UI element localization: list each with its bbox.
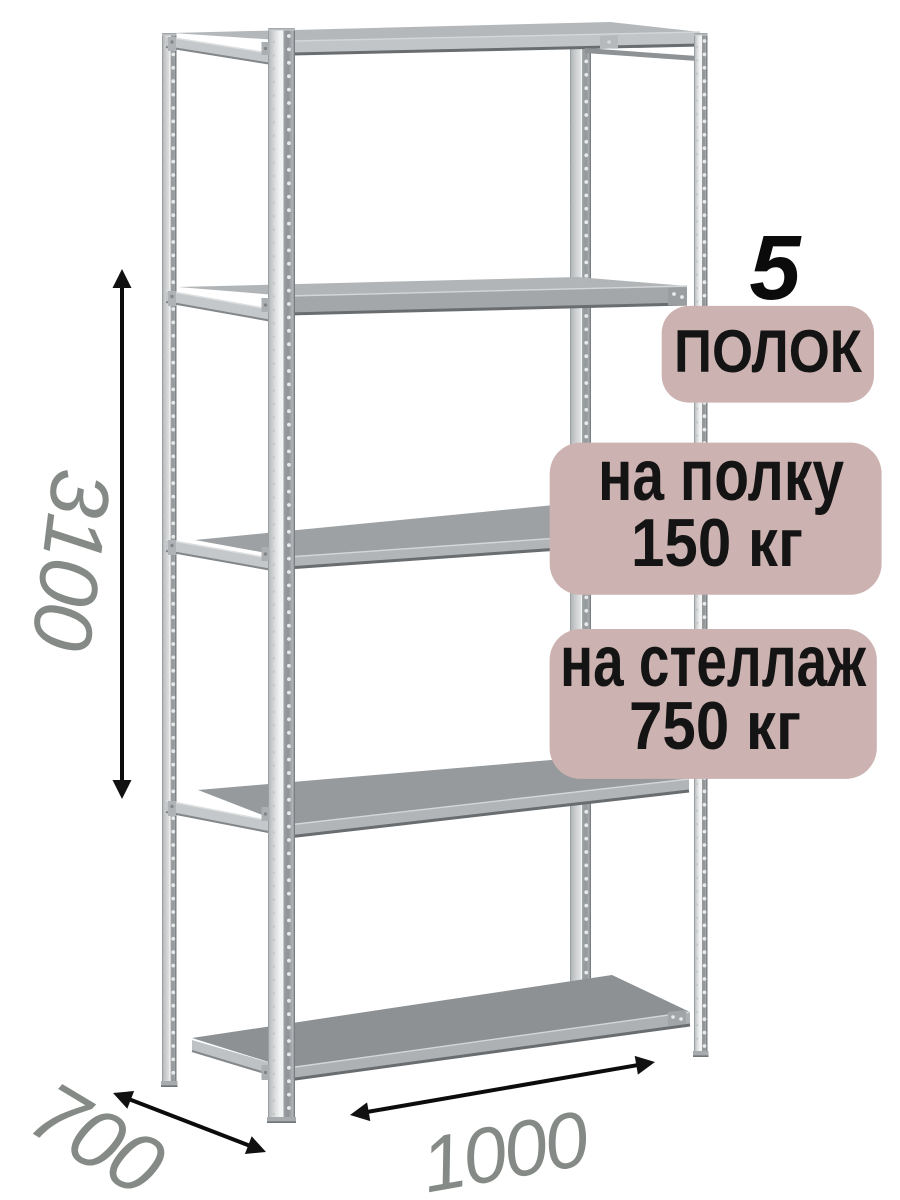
svg-text:5: 5	[749, 217, 802, 319]
svg-text:150 кг: 150 кг	[631, 505, 803, 581]
svg-text:750 кг: 750 кг	[629, 688, 801, 764]
svg-text:ПОЛОК: ПОЛОК	[674, 318, 862, 385]
svg-text:на полку: на полку	[598, 436, 844, 516]
